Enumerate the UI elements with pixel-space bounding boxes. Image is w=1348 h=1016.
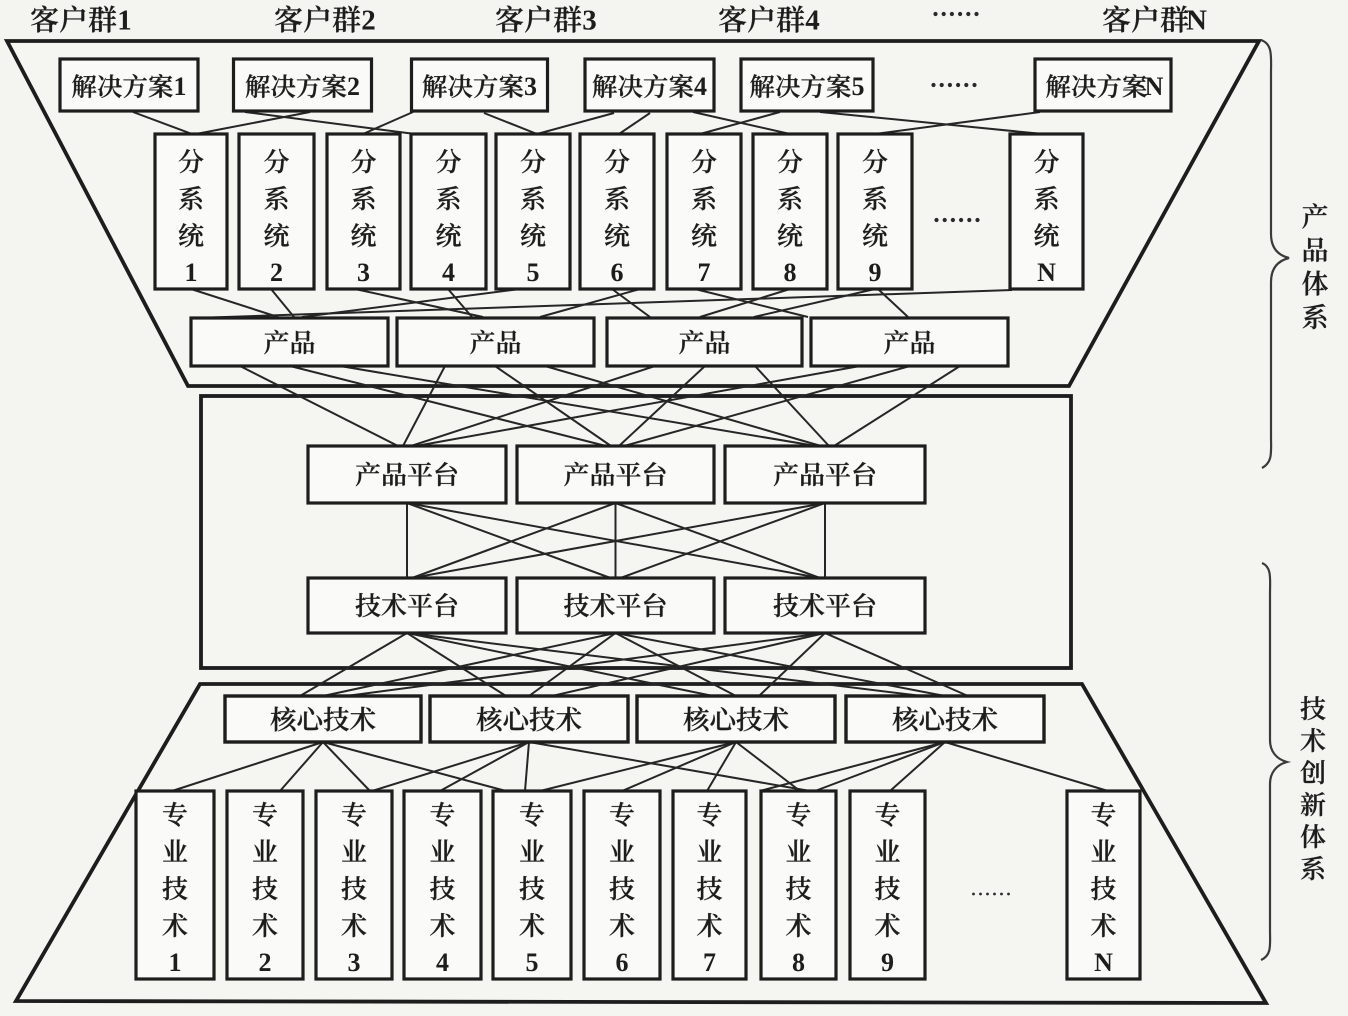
svg-text:6: 6 xyxy=(611,258,624,287)
svg-text:2: 2 xyxy=(270,258,283,287)
svg-text:N: N xyxy=(1186,4,1207,36)
svg-text:4: 4 xyxy=(436,948,449,977)
svg-text:N: N xyxy=(1037,258,1056,287)
svg-text:5: 5 xyxy=(852,72,865,101)
svg-text:3: 3 xyxy=(524,72,537,101)
svg-text:3: 3 xyxy=(582,4,597,36)
svg-text:N: N xyxy=(1145,72,1164,101)
svg-text:9: 9 xyxy=(881,948,894,977)
svg-text:1: 1 xyxy=(185,258,198,287)
svg-text:9: 9 xyxy=(869,258,882,287)
svg-text:1: 1 xyxy=(169,948,182,977)
svg-text:6: 6 xyxy=(616,948,629,977)
svg-text:3: 3 xyxy=(348,948,361,977)
svg-text:N: N xyxy=(1094,948,1113,977)
svg-text:7: 7 xyxy=(698,258,711,287)
svg-text:2: 2 xyxy=(361,4,376,36)
svg-text:1: 1 xyxy=(117,4,132,36)
svg-text:8: 8 xyxy=(784,258,797,287)
svg-text:5: 5 xyxy=(527,258,540,287)
svg-text:4: 4 xyxy=(442,258,455,287)
svg-text:4: 4 xyxy=(694,72,707,101)
svg-text:3: 3 xyxy=(357,258,370,287)
svg-text:4: 4 xyxy=(805,4,820,36)
svg-text:7: 7 xyxy=(703,948,716,977)
svg-text:8: 8 xyxy=(792,948,805,977)
svg-text:2: 2 xyxy=(347,72,360,101)
svg-text:1: 1 xyxy=(174,72,187,101)
svg-text:2: 2 xyxy=(259,948,272,977)
svg-text:5: 5 xyxy=(526,948,539,977)
